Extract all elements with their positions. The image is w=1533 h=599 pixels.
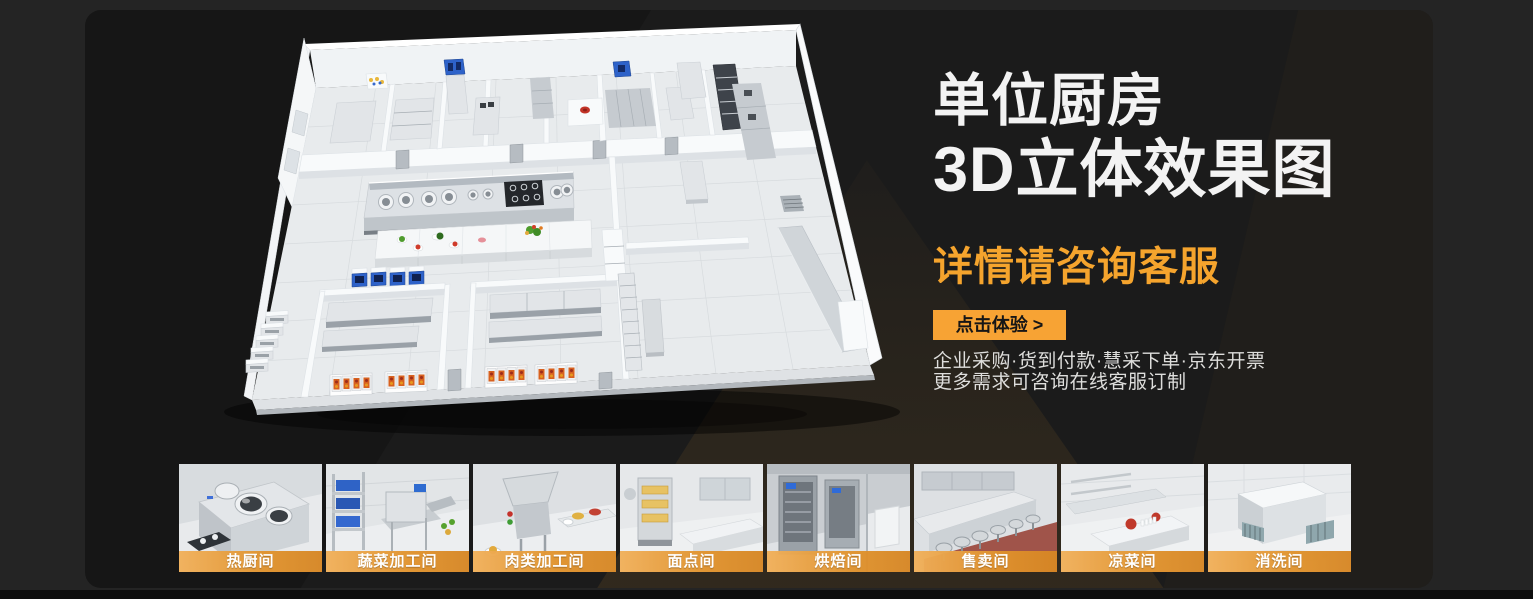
cta-button[interactable]: 点击体验 > — [933, 310, 1066, 340]
thumbnail-label-pastry: 面点间 — [620, 551, 763, 572]
bottom-divider — [0, 590, 1533, 599]
hero-description-line1: 企业采购·货到付款·慧采下单·京东开票 — [933, 351, 1265, 372]
thumbnail-hot-kitchen[interactable]: 热厨间 — [179, 464, 322, 572]
thumbnail-vegetable-processing[interactable]: 蔬菜加工间 — [326, 464, 469, 572]
hero-description-line2: 更多需求可咨询在线客服订制 — [933, 372, 1265, 393]
room-gallery: 热厨间 蔬菜加工间 — [179, 464, 1351, 572]
banner: 单位厨房 3D立体效果图 详情请咨询客服 点击体验 > 企业采购·货到付款·慧采… — [0, 0, 1533, 599]
thumbnail-serving[interactable]: 售卖间 — [914, 464, 1057, 572]
hero-subtitle: 详情请咨询客服 — [933, 244, 1220, 290]
kitchen-3d-floorplan-image — [230, 18, 890, 428]
thumbnail-pastry[interactable]: 面点间 — [620, 464, 763, 572]
hero-description: 企业采购·货到付款·慧采下单·京东开票 更多需求可咨询在线客服订制 — [933, 351, 1265, 393]
hero-title-line2: 3D立体效果图 — [933, 136, 1336, 205]
thumbnail-cold-dish[interactable]: 凉菜间 — [1061, 464, 1204, 572]
thumbnail-label-serving: 售卖间 — [914, 551, 1057, 572]
thumbnail-baking[interactable]: 烘焙间 — [767, 464, 910, 572]
thumbnail-label-baking: 烘焙间 — [767, 551, 910, 572]
thumbnail-label-meat-processing: 肉类加工间 — [473, 551, 616, 572]
hero-title-line1: 单位厨房 — [933, 70, 1165, 134]
thumbnail-label-hot-kitchen: 热厨间 — [179, 551, 322, 572]
thumbnail-label-washing: 消洗间 — [1208, 551, 1351, 572]
thumbnail-label-cold-dish: 凉菜间 — [1061, 551, 1204, 572]
thumbnail-meat-processing[interactable]: 肉类加工间 — [473, 464, 616, 572]
thumbnail-label-vegetable-processing: 蔬菜加工间 — [326, 551, 469, 572]
thumbnail-washing[interactable]: 消洗间 — [1208, 464, 1351, 572]
